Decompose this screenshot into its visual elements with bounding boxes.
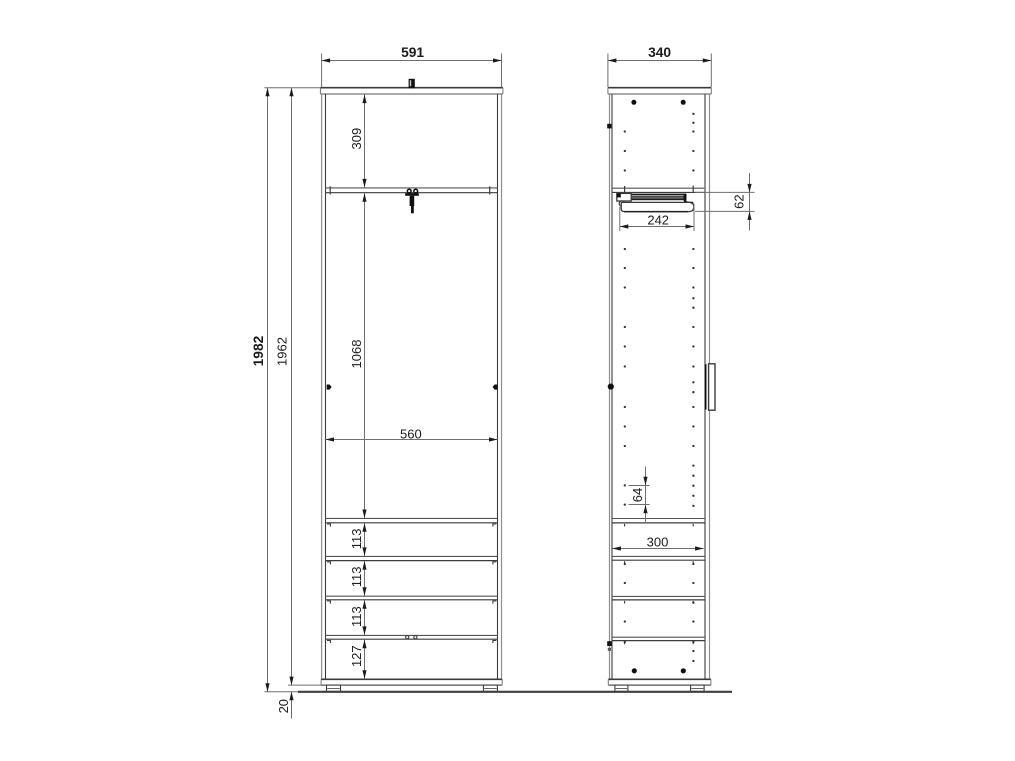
svg-text:1982: 1982 <box>251 335 266 366</box>
svg-text:340: 340 <box>648 45 671 60</box>
svg-text:242: 242 <box>647 212 669 227</box>
svg-text:1962: 1962 <box>275 337 290 366</box>
svg-text:64: 64 <box>630 488 645 502</box>
svg-text:62: 62 <box>732 194 747 208</box>
svg-text:591: 591 <box>401 45 424 60</box>
svg-text:300: 300 <box>647 534 669 549</box>
svg-text:1068: 1068 <box>349 340 364 369</box>
svg-text:560: 560 <box>400 427 422 442</box>
svg-text:113: 113 <box>349 606 364 627</box>
svg-text:113: 113 <box>349 529 364 550</box>
svg-text:20: 20 <box>276 699 291 713</box>
svg-text:309: 309 <box>349 128 364 150</box>
svg-text:113: 113 <box>349 567 364 588</box>
svg-text:127: 127 <box>349 645 364 667</box>
